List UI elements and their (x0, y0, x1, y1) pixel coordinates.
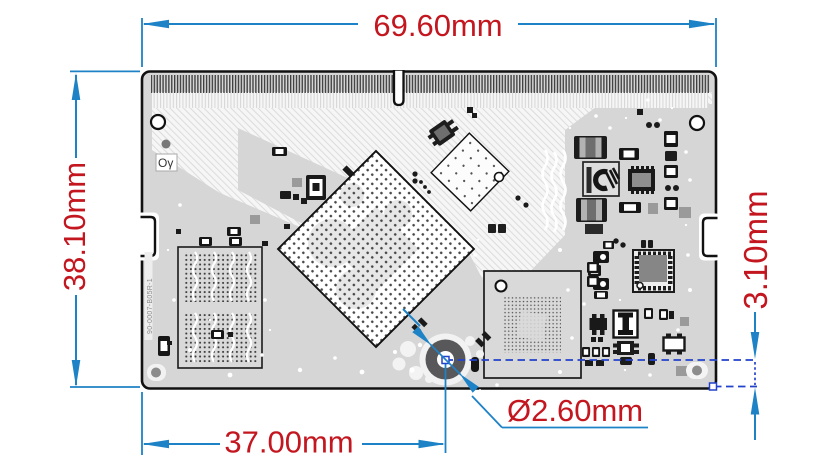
svg-text:Oγ: Oγ (158, 156, 173, 170)
svg-text:Ø2.60mm: Ø2.60mm (507, 393, 643, 428)
svg-text:38.10mm: 38.10mm (57, 162, 92, 291)
svg-text:69.60mm: 69.60mm (373, 8, 502, 43)
svg-text:3.10mm: 3.10mm (737, 190, 774, 309)
svg-text:90-0007-B05R-1: 90-0007-B05R-1 (147, 278, 154, 334)
svg-text:37.00mm: 37.00mm (224, 425, 353, 460)
